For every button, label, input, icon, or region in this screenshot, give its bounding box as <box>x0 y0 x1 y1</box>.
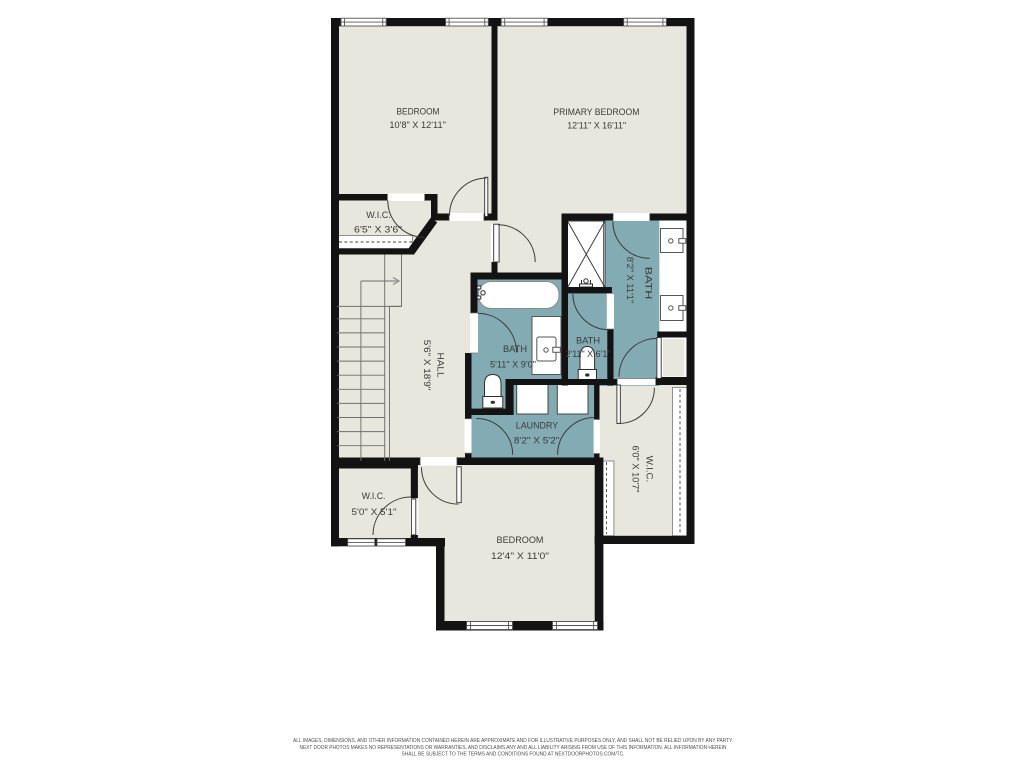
svg-text:PRIMARY BEDROOM: PRIMARY BEDROOM <box>553 107 639 118</box>
svg-text:BEDROOM: BEDROOM <box>397 107 440 118</box>
svg-text:W.I.C.: W.I.C. <box>366 210 391 221</box>
svg-text:LAUNDRY: LAUNDRY <box>516 421 559 432</box>
svg-text:6'0" X 10'7": 6'0" X 10'7" <box>630 446 641 493</box>
svg-text:5'6" X 18'9": 5'6" X 18'9" <box>421 340 432 391</box>
svg-text:8'2" X 5'2": 8'2" X 5'2" <box>514 436 560 447</box>
svg-text:6'5" X 3'6": 6'5" X 3'6" <box>354 225 402 236</box>
svg-text:HALL: HALL <box>435 353 446 379</box>
svg-text:BATH: BATH <box>503 344 527 355</box>
svg-text:BATH: BATH <box>643 267 654 300</box>
svg-text:W.I.C.: W.I.C. <box>644 456 655 483</box>
svg-text:2'11" X 6'1": 2'11" X 6'1" <box>566 349 611 360</box>
svg-text:ALL IMAGES, DIMENSIONS, AND OT: ALL IMAGES, DIMENSIONS, AND OTHER INFORM… <box>293 738 733 744</box>
svg-text:SHALL BE SUBJECT TO THE TERMS: SHALL BE SUBJECT TO THE TERMS AND CONDIT… <box>402 752 625 758</box>
svg-text:NEXT DOOR PHOTOS MAKES NO REPR: NEXT DOOR PHOTOS MAKES NO REPRESENTATION… <box>300 745 727 751</box>
svg-text:12'4" X 11'0": 12'4" X 11'0" <box>491 551 549 562</box>
svg-text:5'11" X 9'0": 5'11" X 9'0" <box>490 360 536 371</box>
svg-text:5'0" X 5'1": 5'0" X 5'1" <box>352 507 397 518</box>
svg-text:12'11" X 16'11": 12'11" X 16'11" <box>567 121 626 132</box>
svg-text:BEDROOM: BEDROOM <box>497 535 544 546</box>
svg-text:8'2" X 11'1": 8'2" X 11'1" <box>624 257 635 304</box>
svg-text:10'8" X 12'11": 10'8" X 12'11" <box>389 120 446 131</box>
svg-text:W.I.C.: W.I.C. <box>362 491 386 502</box>
svg-text:BATH: BATH <box>576 336 600 347</box>
